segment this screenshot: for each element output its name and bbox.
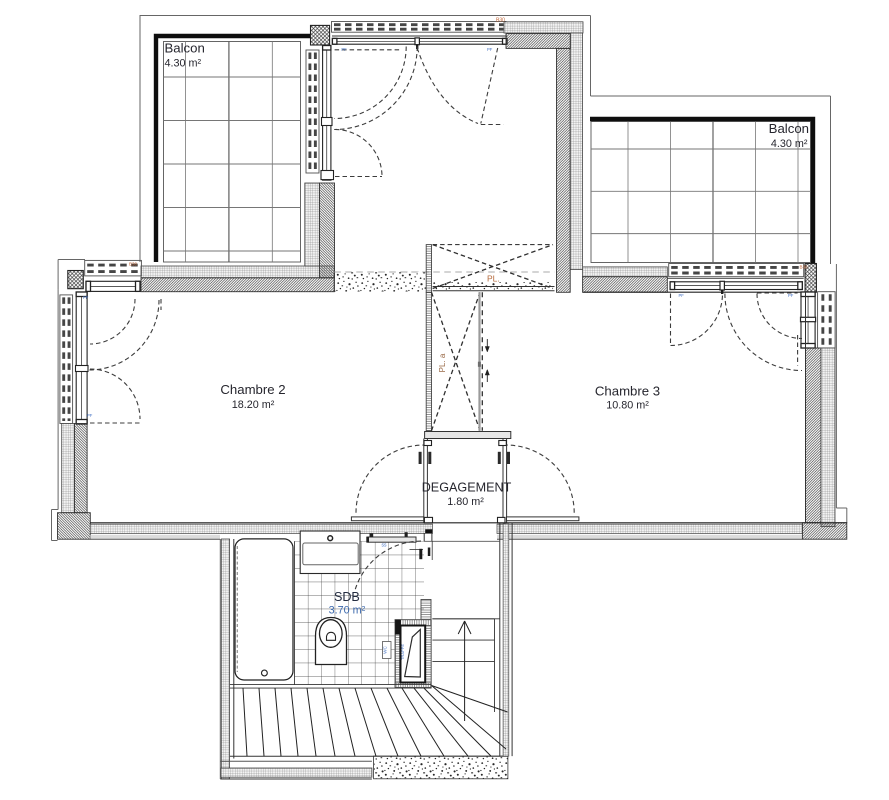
svg-text:PF: PF <box>341 47 347 52</box>
svg-text:DEGAGEMENT: DEGAGEMENT <box>422 481 512 495</box>
svg-text:PF: PF <box>87 413 93 418</box>
svg-text:PF: PF <box>487 47 493 52</box>
svg-text:Balcon: Balcon <box>769 121 809 136</box>
svg-text:B30: B30 <box>129 262 138 267</box>
svg-text:PL. a: PL. a <box>438 353 447 372</box>
svg-text:PF: PF <box>83 295 89 300</box>
svg-text:4.30 m²: 4.30 m² <box>165 58 202 70</box>
svg-text:10.80 m²: 10.80 m² <box>606 400 649 412</box>
svg-text:B30: B30 <box>496 18 505 24</box>
svg-text:ss: ss <box>382 543 388 549</box>
svg-text:1.80 m²: 1.80 m² <box>447 496 484 508</box>
svg-text:PF: PF <box>788 293 794 298</box>
svg-text:Balcon: Balcon <box>165 41 205 56</box>
svg-text:PF: PF <box>679 293 685 298</box>
svg-text:Chambre 3: Chambre 3 <box>595 384 660 399</box>
svg-text:4.30 m²: 4.30 m² <box>771 138 808 150</box>
svg-text:WC: WC <box>383 645 388 653</box>
svg-text:18.20 m²: 18.20 m² <box>232 399 275 411</box>
svg-text:3.70 m²: 3.70 m² <box>329 605 366 617</box>
svg-text:SDB: SDB <box>334 590 360 604</box>
svg-text:PL.: PL. <box>487 274 500 284</box>
svg-text:TRAPPE: TRAPPE <box>400 644 405 660</box>
svg-text:Chambre 2: Chambre 2 <box>220 382 285 397</box>
svg-text:B30: B30 <box>800 265 809 270</box>
